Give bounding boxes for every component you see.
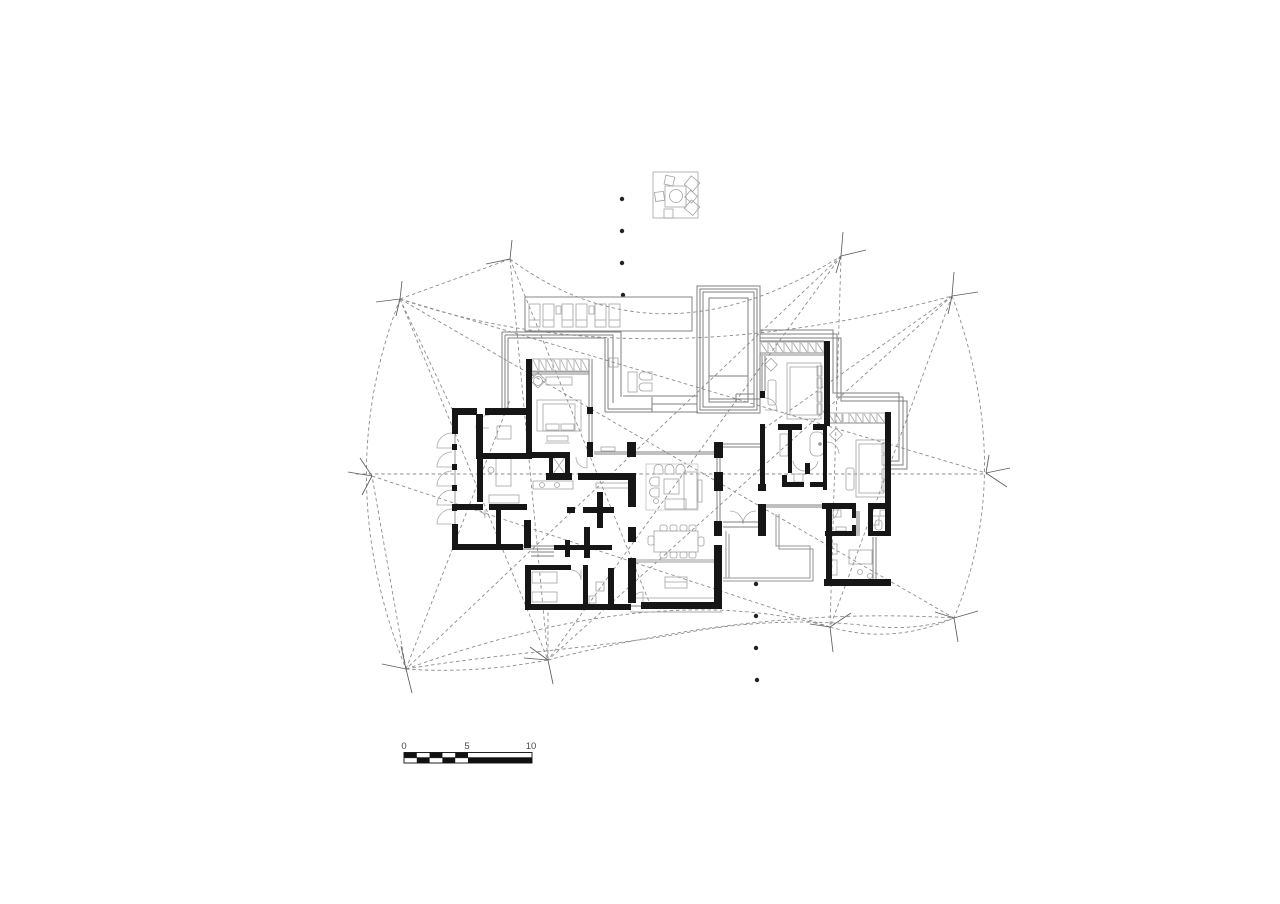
svg-text:0: 0 (401, 741, 406, 752)
svg-text:5: 5 (464, 741, 469, 752)
svg-text:10: 10 (526, 741, 537, 752)
